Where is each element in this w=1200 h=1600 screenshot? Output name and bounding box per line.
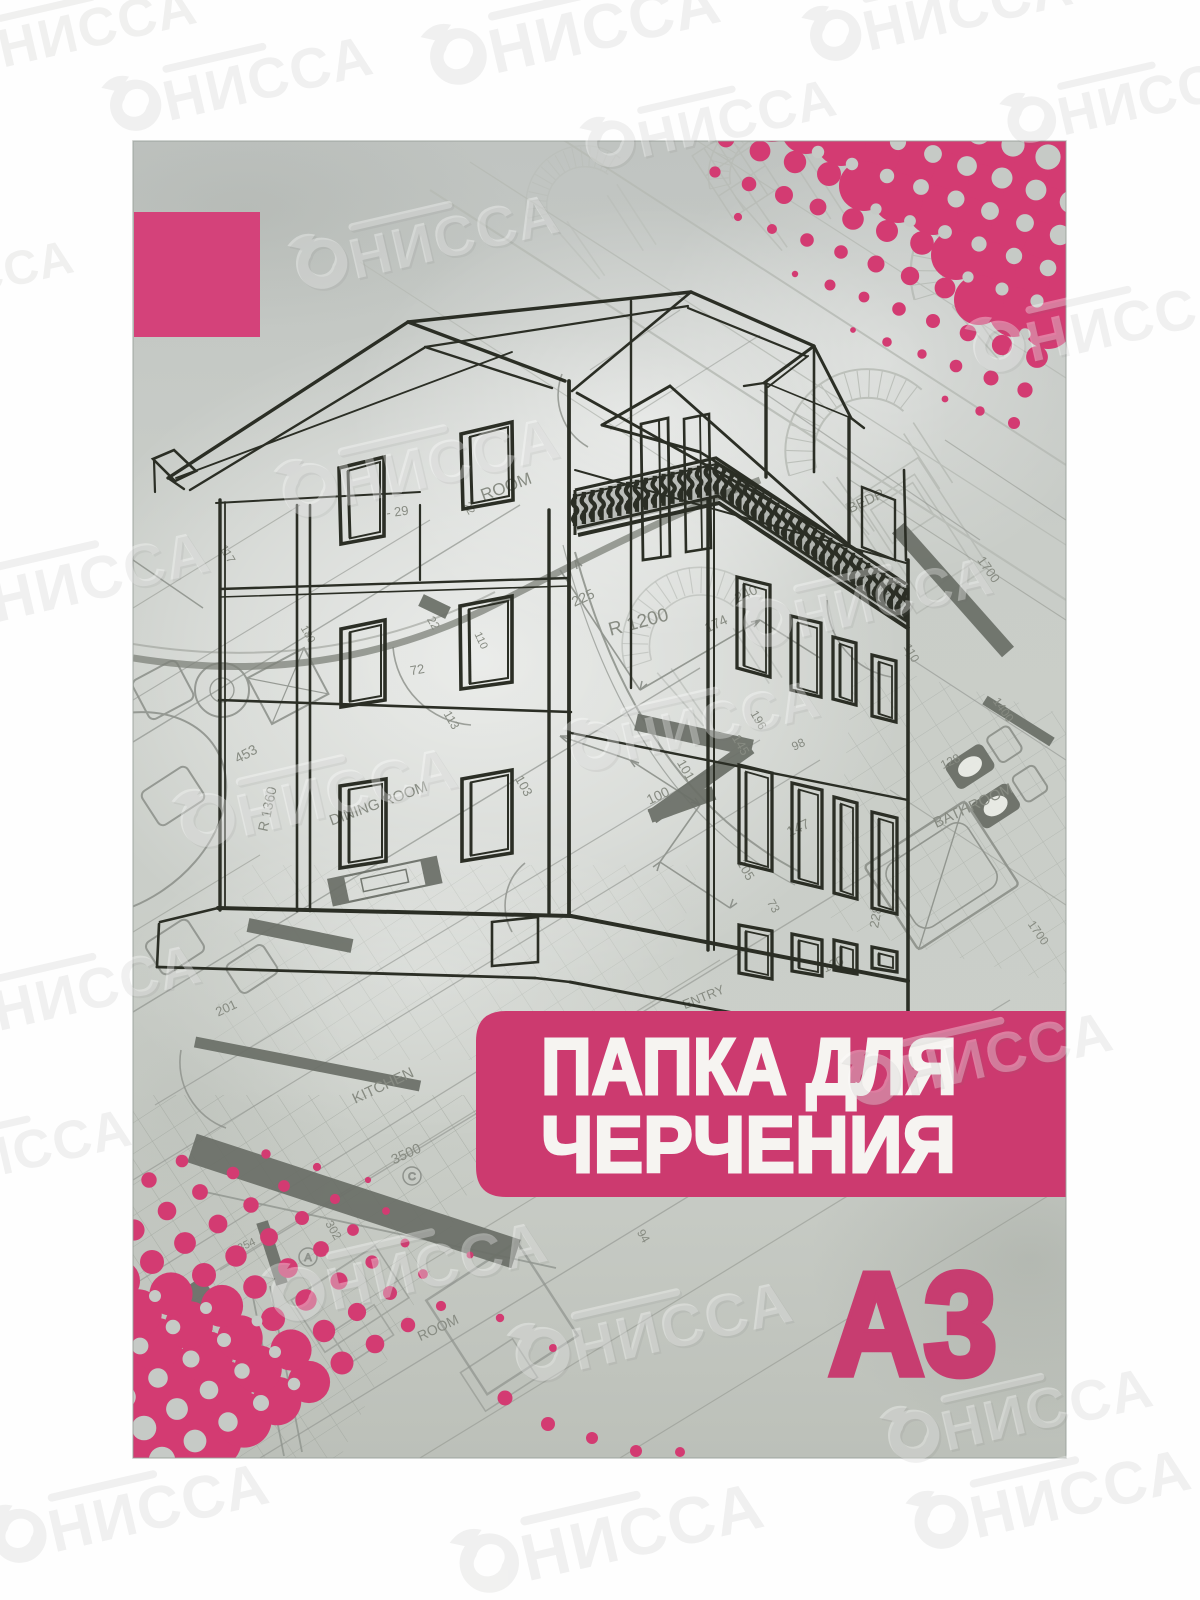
- svg-text:ЧЕРЧЕНИЯ: ЧЕРЧЕНИЯ: [541, 1100, 956, 1189]
- svg-text:C: C: [408, 1171, 416, 1183]
- svg-text:А3: А3: [829, 1243, 997, 1405]
- svg-text:72: 72: [409, 661, 426, 678]
- svg-text:A: A: [304, 1252, 312, 1264]
